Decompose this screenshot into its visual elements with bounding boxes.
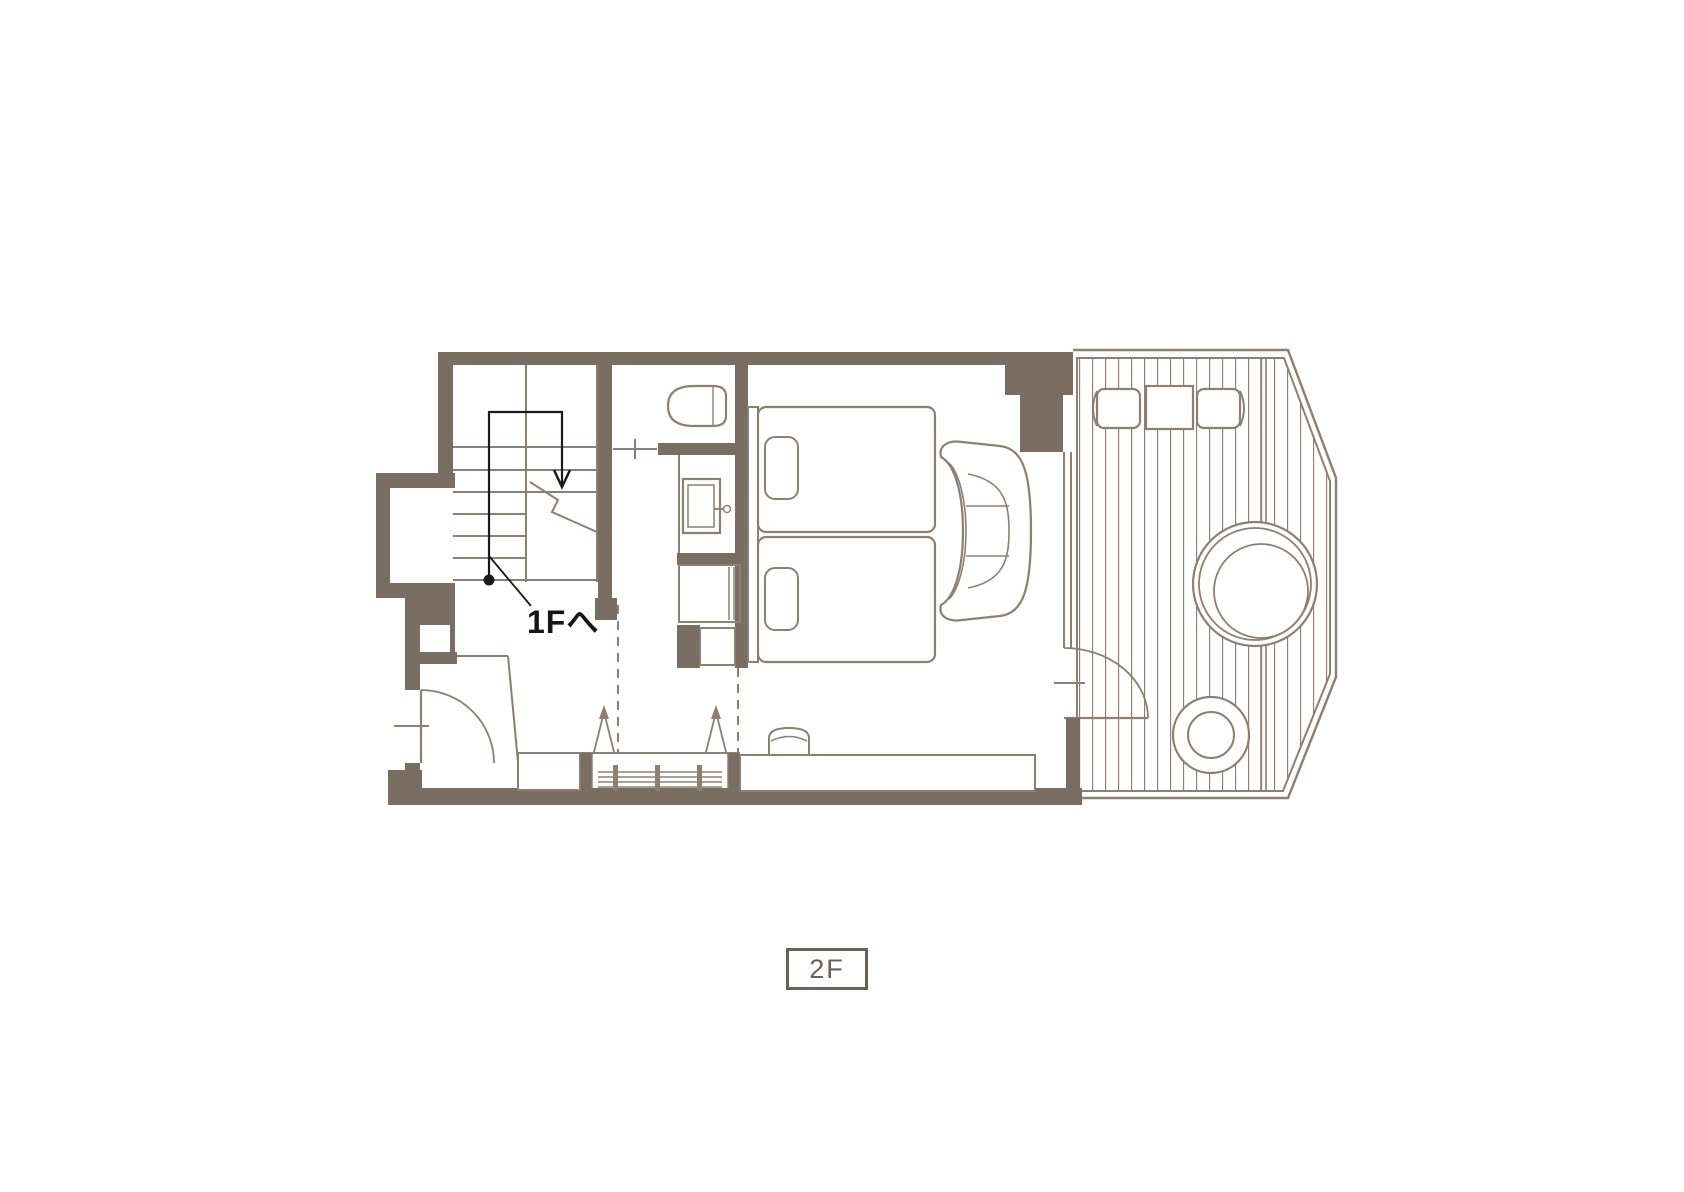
floor-plan xyxy=(0,0,1684,1192)
closet-post xyxy=(580,753,592,790)
left-niche xyxy=(420,625,450,652)
route-start-dot xyxy=(484,575,495,586)
shoe-cabinet xyxy=(518,753,580,790)
wall-vanity-stub xyxy=(677,553,735,565)
counter xyxy=(740,755,1035,791)
staircase xyxy=(453,365,597,582)
vanity-cabinet xyxy=(679,565,740,622)
folding-door-mark xyxy=(594,716,603,752)
floorplan-canvas: 1Fへ 2F xyxy=(0,0,1684,1192)
deck-chair-icon xyxy=(1197,389,1240,428)
wall-pier-a xyxy=(1005,365,1073,395)
floor-badge: 2F xyxy=(786,948,868,990)
folding-door-arrow xyxy=(599,705,609,719)
wall-pier-b xyxy=(1020,395,1063,452)
counter-item-icon xyxy=(769,728,809,755)
wood-deck xyxy=(1054,350,1336,798)
stairs-to-1f-label: 1Fへ xyxy=(527,597,599,643)
storage-box xyxy=(700,628,735,665)
bed-icon xyxy=(758,407,935,532)
bedroom xyxy=(748,407,1031,662)
stair-break-line xyxy=(530,482,597,532)
hanger-icon xyxy=(697,765,702,791)
headboard xyxy=(748,407,758,662)
wall-stub-row xyxy=(405,652,457,664)
wall-mid-long xyxy=(598,365,612,620)
faucet-knob xyxy=(724,506,731,513)
closet-post xyxy=(728,753,740,790)
wall-stub-br xyxy=(1066,718,1080,803)
hanger-icon xyxy=(655,765,660,791)
entrance-door-swing-arc xyxy=(421,690,494,763)
floor-badge-text: 2F xyxy=(809,954,845,985)
folding-door-mark xyxy=(717,716,726,752)
genkan-step-slant xyxy=(508,656,518,762)
wall-lower-block xyxy=(677,625,700,668)
round-bathtub-icon xyxy=(1193,522,1317,646)
folding-door-arrow xyxy=(711,705,721,719)
hanger-icon xyxy=(613,765,618,791)
bed-icon xyxy=(758,537,935,662)
wall-left-strip xyxy=(405,664,420,690)
folding-door-mark xyxy=(706,716,715,752)
deck-table-icon xyxy=(1146,386,1193,429)
wall-top xyxy=(438,352,1073,365)
wall-toilet-bottom xyxy=(658,443,748,455)
folding-door-mark xyxy=(605,716,614,752)
bath-stool-icon xyxy=(1173,697,1249,773)
bay-niche xyxy=(390,488,455,583)
wall-left-upper xyxy=(438,365,453,473)
toilet-icon xyxy=(668,386,726,426)
deck-chair-icon xyxy=(1097,389,1140,428)
